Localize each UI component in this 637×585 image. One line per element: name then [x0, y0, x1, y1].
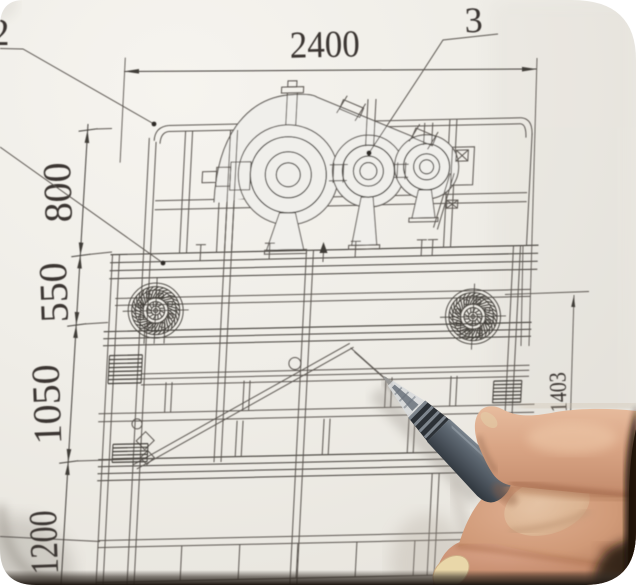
svg-text:2400: 2400 — [289, 23, 360, 66]
svg-text:1050: 1050 — [23, 364, 71, 446]
svg-text:550: 550 — [30, 262, 77, 324]
svg-text:800: 800 — [34, 162, 81, 224]
svg-text:3: 3 — [464, 0, 483, 40]
svg-text:2: 2 — [0, 12, 10, 54]
svg-text:1200: 1200 — [20, 510, 67, 576]
